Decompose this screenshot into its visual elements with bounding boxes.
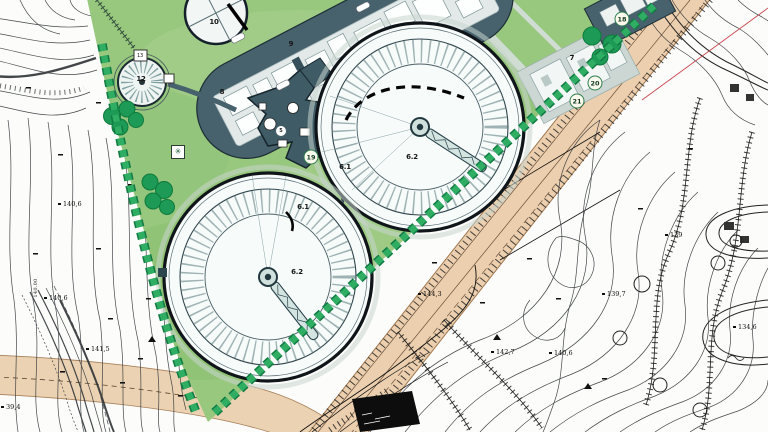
hairpin-roads xyxy=(650,0,768,365)
site-plan-map: 10 12 13 7 8 9 5 6.1 6.2 6.1 6.2 140.00 … xyxy=(0,0,768,432)
plan-drawing xyxy=(0,0,768,432)
clarifier-tank-lower xyxy=(158,167,378,387)
outline-trees xyxy=(613,235,742,417)
